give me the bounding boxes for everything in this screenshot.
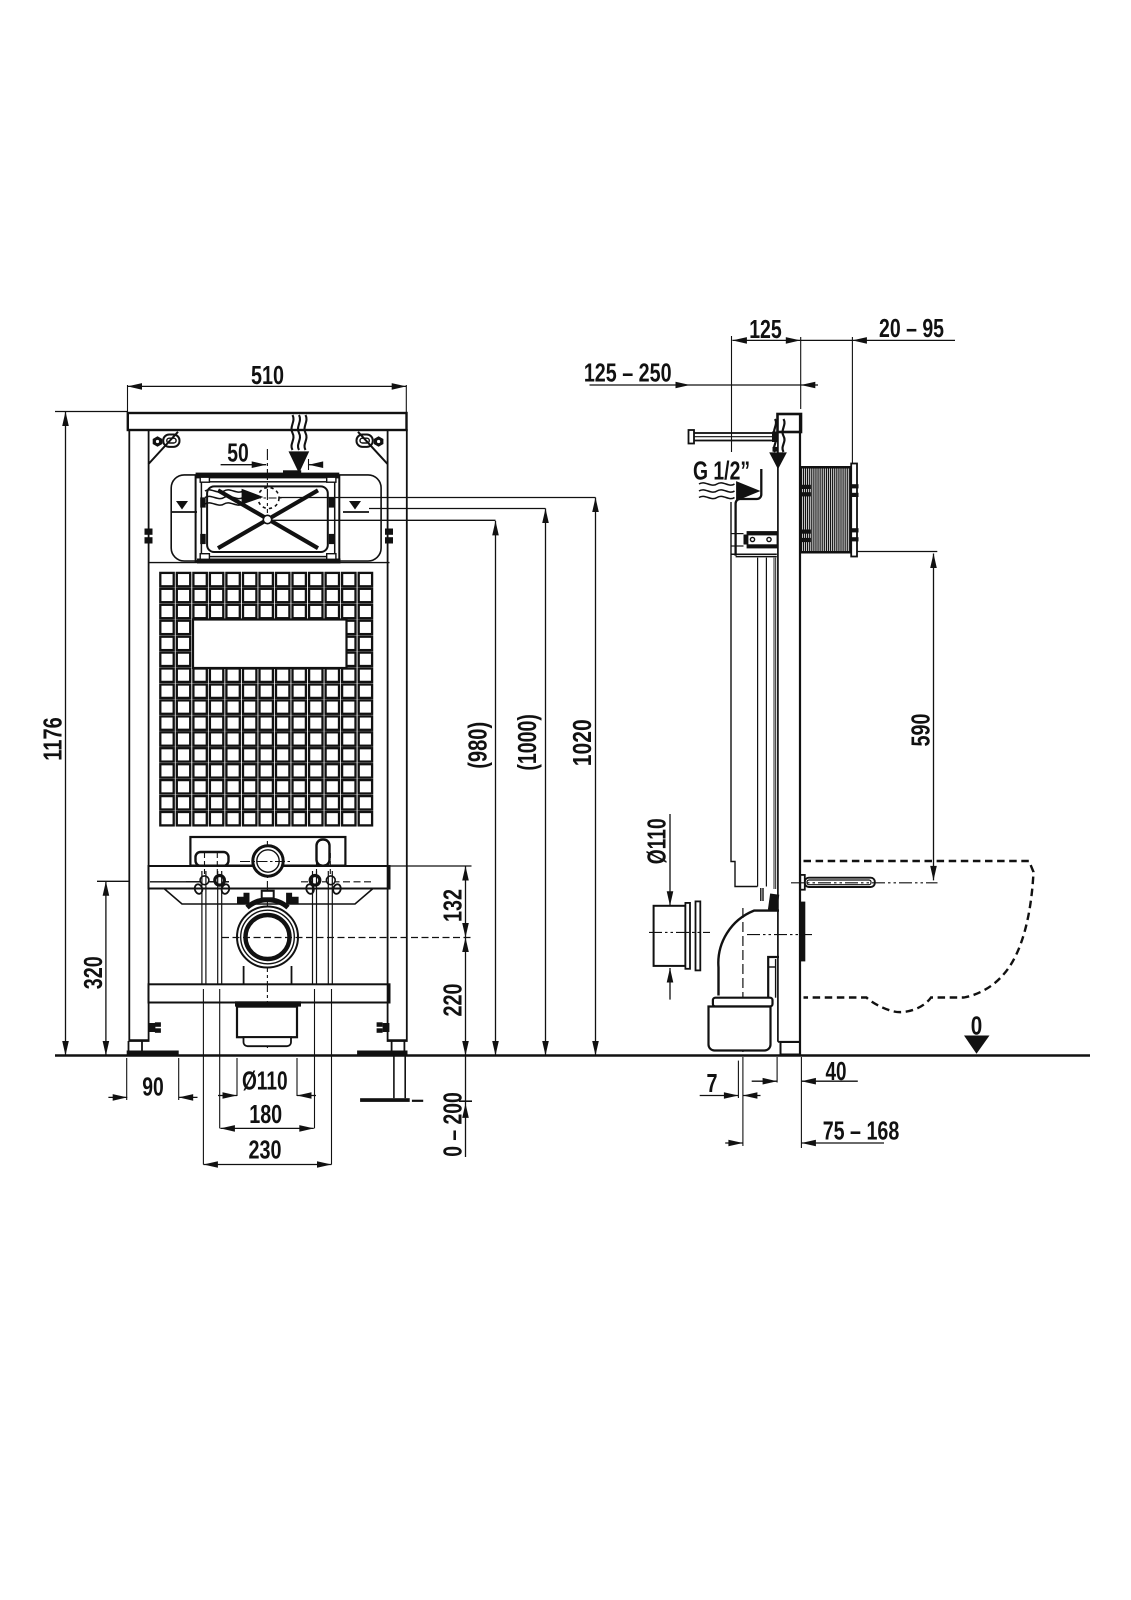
svg-text:G 1/2”: G 1/2”: [693, 456, 750, 486]
svg-text:1176: 1176: [38, 717, 68, 761]
svg-text:75 – 168: 75 – 168: [823, 1116, 900, 1146]
svg-text:1020: 1020: [567, 719, 597, 766]
svg-text:90: 90: [142, 1072, 164, 1102]
svg-text:132: 132: [438, 889, 468, 922]
svg-text:180: 180: [249, 1099, 282, 1129]
svg-text:(980): (980): [463, 722, 493, 769]
svg-text:590: 590: [906, 714, 936, 747]
svg-text:220: 220: [438, 984, 468, 1017]
svg-text:(1000): (1000): [512, 714, 542, 771]
svg-text:Ø110: Ø110: [642, 818, 672, 864]
svg-text:510: 510: [251, 360, 284, 390]
svg-text:20 – 95: 20 – 95: [879, 313, 944, 343]
svg-text:7: 7: [707, 1068, 718, 1098]
svg-text:50: 50: [227, 438, 249, 468]
svg-text:320: 320: [78, 956, 108, 989]
svg-text:Ø110: Ø110: [242, 1066, 288, 1096]
svg-text:125: 125: [749, 314, 782, 344]
svg-text:125 – 250: 125 – 250: [584, 358, 672, 388]
svg-text:0 – 200: 0 – 200: [438, 1092, 468, 1157]
svg-text:230: 230: [249, 1135, 282, 1165]
